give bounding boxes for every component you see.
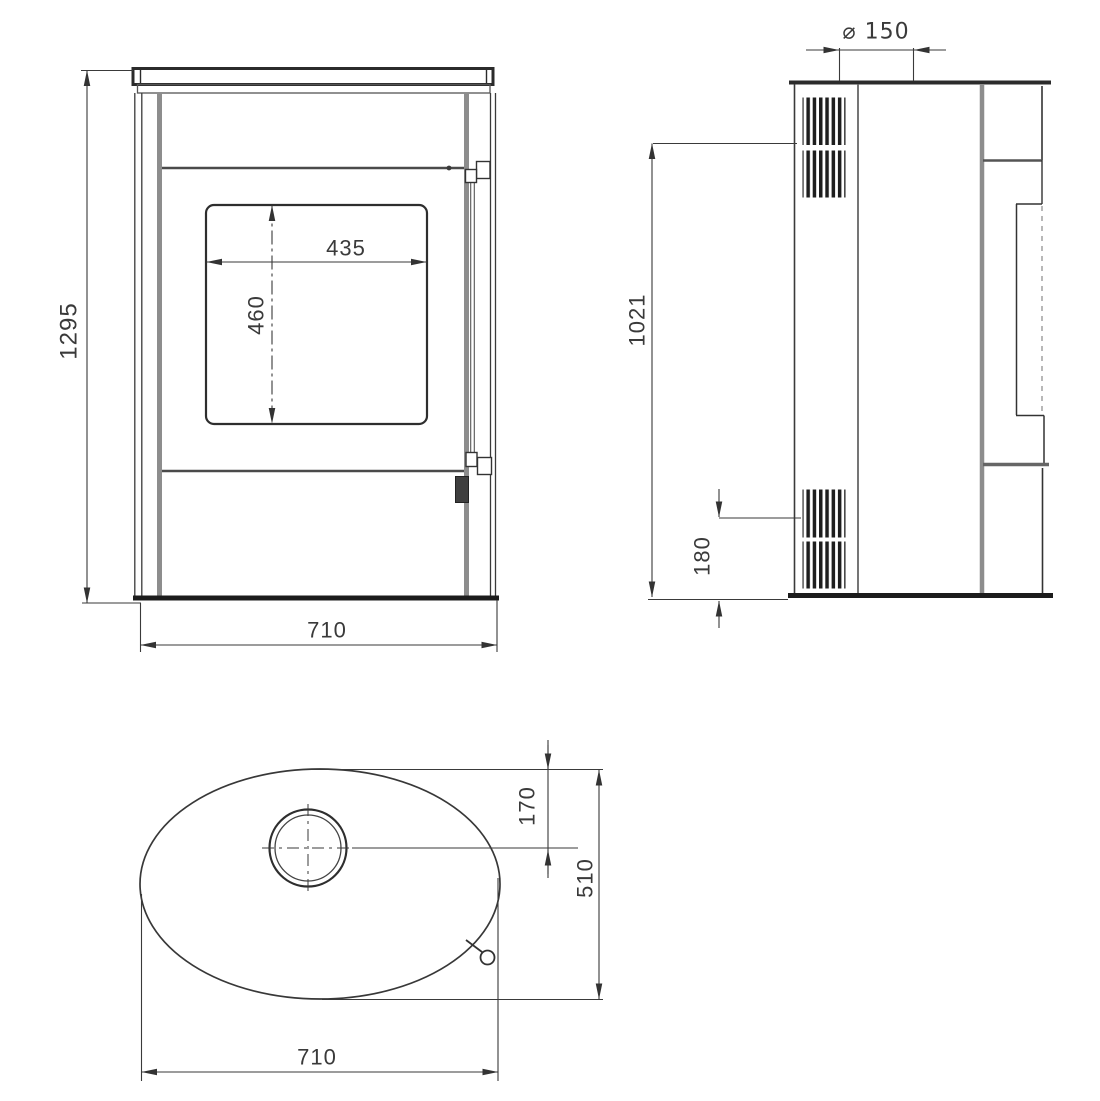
front-hinge-top-outer bbox=[477, 162, 491, 179]
technical-drawing: 1295 435 460 710 bbox=[0, 0, 1100, 1101]
dim-label-glass-height: 460 bbox=[244, 295, 269, 335]
front-view: 1295 435 460 710 bbox=[56, 69, 500, 653]
vent-grille-top-1 bbox=[803, 98, 846, 146]
dim-depth bbox=[322, 770, 603, 1000]
drawing-sheet: 1295 435 460 710 bbox=[0, 0, 1100, 1101]
top-view: 170 510 710 bbox=[140, 740, 603, 1081]
dim-label-depth: 510 bbox=[573, 858, 598, 898]
dim-upper-vent-height bbox=[648, 144, 797, 600]
dim-front-height bbox=[81, 71, 141, 604]
front-hinge-bottom-inner bbox=[466, 453, 477, 467]
vent-grille-bottom-2 bbox=[803, 542, 846, 589]
front-hinge-top-inner bbox=[466, 170, 477, 183]
dim-flue-diameter bbox=[806, 48, 946, 81]
dim-label-flue-diameter: ⌀ 150 bbox=[842, 20, 909, 45]
vent-grille-bottom-1 bbox=[803, 490, 846, 538]
dim-label-lower-vent-height: 180 bbox=[690, 536, 715, 576]
dim-label-flue-offset: 170 bbox=[515, 786, 540, 826]
door-handle-knob bbox=[481, 951, 495, 965]
side-view: ⌀ 150 1021 180 bbox=[625, 20, 1054, 629]
front-hinge-bottom-outer bbox=[478, 458, 492, 475]
dim-label-upper-vent-height: 1021 bbox=[625, 294, 650, 347]
front-top-plate bbox=[133, 69, 493, 85]
dim-label-glass-width: 435 bbox=[326, 236, 366, 261]
dim-label-top-width: 710 bbox=[297, 1045, 337, 1070]
dim-label-front-width: 710 bbox=[307, 618, 347, 643]
front-door-glass bbox=[206, 205, 427, 424]
vent-grille-top-2 bbox=[803, 151, 846, 198]
front-door-top-mark bbox=[447, 166, 452, 171]
front-door-handle bbox=[456, 477, 469, 503]
dim-lower-vent-height bbox=[719, 489, 801, 628]
dim-label-front-height: 1295 bbox=[56, 302, 83, 359]
